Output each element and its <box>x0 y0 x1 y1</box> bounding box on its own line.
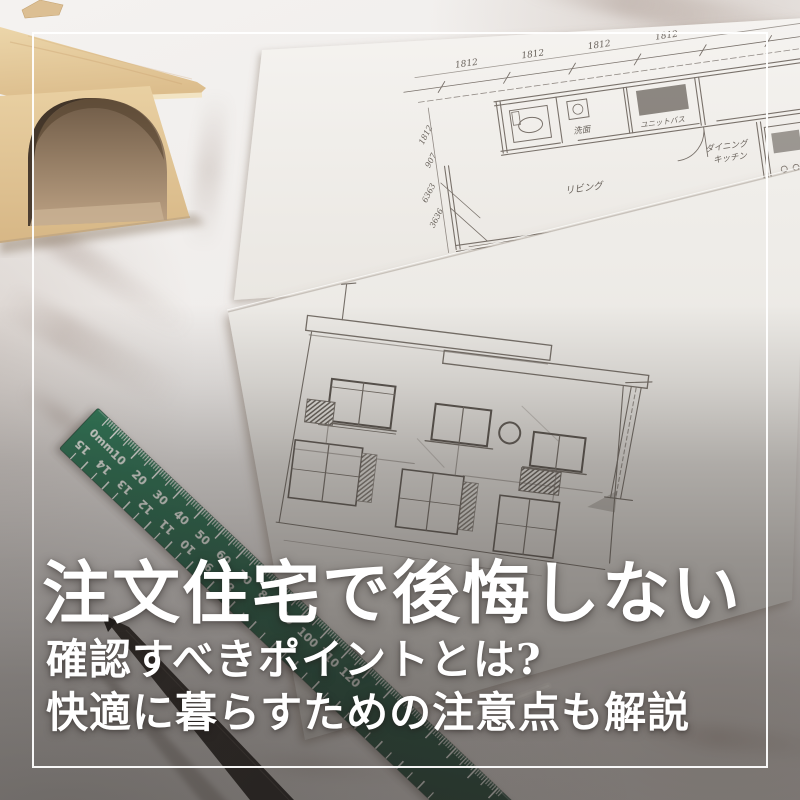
caption-block: 注文住宅で後悔しない 確認すべきポイントとは? 快適に暮らすための注意点も解説 <box>0 0 800 800</box>
subtitle-line-2: 快適に暮らすための注意点も解説 <box>46 679 690 740</box>
title-text: 注文住宅で後悔しない <box>42 538 742 637</box>
subtitle-line-1: 確認すべきポイントとは? <box>46 626 542 687</box>
blog-cover-image: 1812 1812 1812 1812 <box>0 0 800 800</box>
